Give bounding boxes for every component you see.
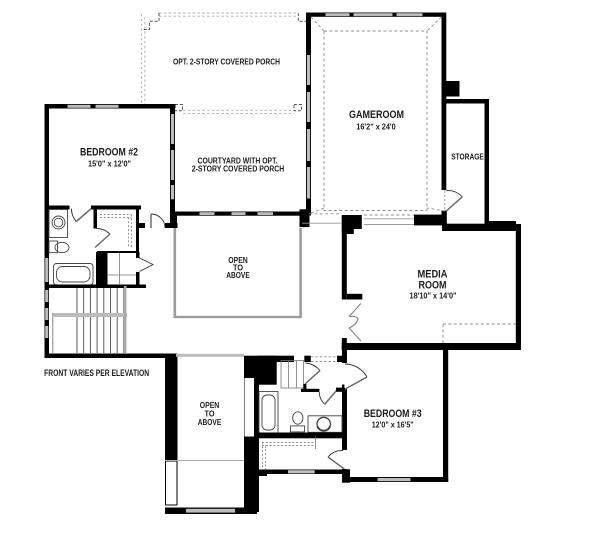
svg-text:OPT. 2-STORY COVERED PORCH: OPT. 2-STORY COVERED PORCH <box>173 57 280 67</box>
svg-text:STORAGE: STORAGE <box>451 152 484 162</box>
svg-text:BEDROOM #2: BEDROOM #2 <box>80 147 138 159</box>
svg-text:18'10" x 14'0": 18'10" x 14'0" <box>410 291 457 301</box>
svg-text:12'0" x 16'5": 12'0" x 16'5" <box>372 420 414 430</box>
svg-text:BEDROOM #3: BEDROOM #3 <box>364 408 422 420</box>
svg-text:16'2" x 24'0: 16'2" x 24'0 <box>356 122 396 132</box>
svg-text:ABOVE: ABOVE <box>226 271 250 280</box>
svg-text:GAMEROOM: GAMEROOM <box>349 109 404 121</box>
svg-text:15'0" x 12'0": 15'0" x 12'0" <box>88 159 131 169</box>
svg-text:FRONT VARIES PER ELEVATION: FRONT VARIES PER ELEVATION <box>44 368 149 378</box>
svg-text:2-STORY COVERED PORCH: 2-STORY COVERED PORCH <box>192 165 285 174</box>
svg-text:ABOVE: ABOVE <box>198 418 222 427</box>
